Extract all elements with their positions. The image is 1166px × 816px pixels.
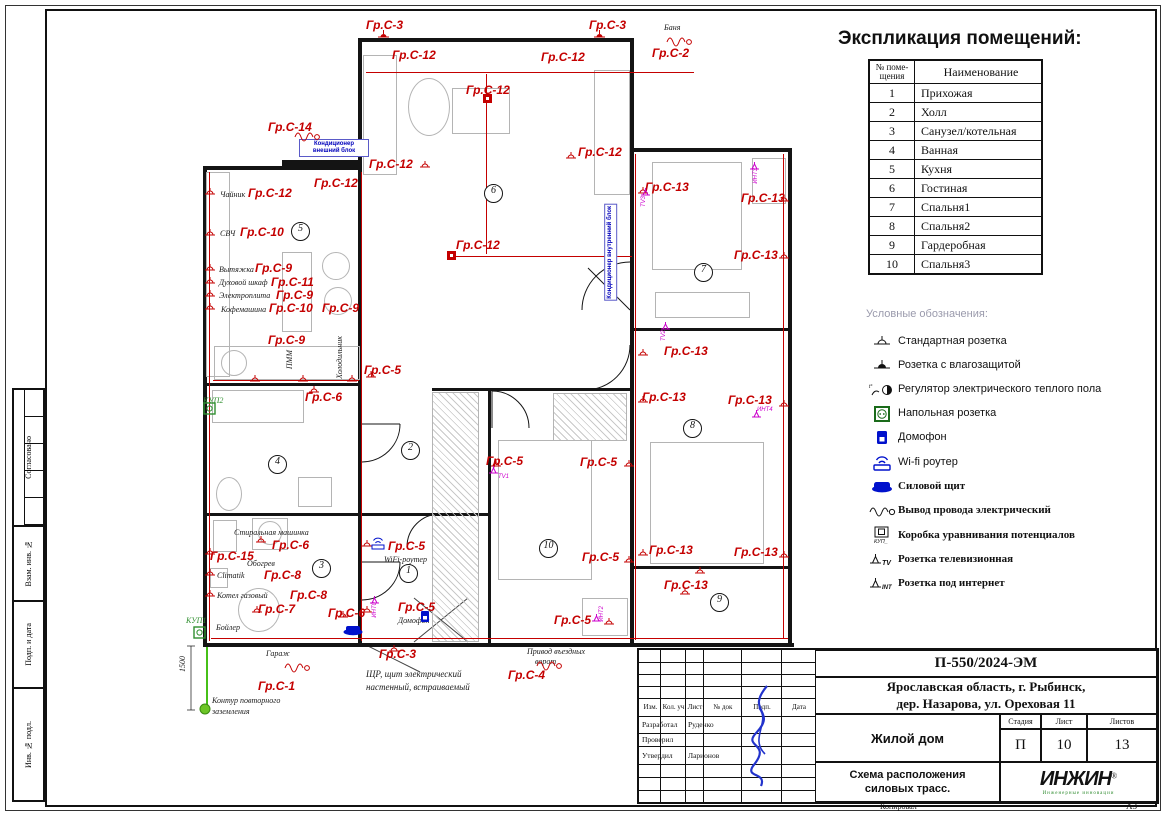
sock-marker-icon	[347, 375, 357, 385]
room-number-cell: 9	[869, 236, 915, 255]
plan-label: Баня	[664, 24, 680, 32]
legend-item: t°Регулятор электрического теплого пола	[866, 381, 1126, 398]
logo-reg-mark: ®	[1111, 772, 1117, 781]
sock-marker-icon	[695, 567, 705, 577]
plan-label: Гр.С-13	[649, 544, 693, 557]
fs-marker-icon	[482, 93, 493, 104]
title-block: П-550/2024-ЭМ Ярославская область, г. Ры…	[637, 648, 1159, 804]
room-number-cell: 5	[869, 160, 915, 179]
sock-marker-icon	[205, 548, 215, 558]
ws-marker-icon	[594, 30, 605, 41]
plan-label: Гр.С-12	[578, 146, 622, 159]
room-number: 4	[268, 455, 287, 474]
legend-item: КУП_Коробка уравнивания потенциалов	[866, 526, 1126, 544]
address-line1: Ярославская область, г. Рыбинск,	[887, 679, 1086, 695]
sock-marker-icon	[298, 375, 308, 385]
sock-marker-icon	[252, 606, 262, 616]
role-approved: Утвердил	[640, 746, 685, 764]
sock-marker-icon	[309, 386, 319, 396]
tvm-marker-icon	[489, 466, 498, 475]
wall	[788, 148, 792, 647]
room-name-cell: Гардеробная	[915, 236, 1043, 255]
plan-label: СВЧ	[220, 230, 235, 238]
table-row: 10Спальня3	[869, 255, 1042, 275]
svg-text:КУП_: КУП_	[874, 539, 888, 544]
furniture	[652, 162, 742, 270]
sock-marker-icon	[338, 611, 348, 621]
room-name-cell: Санузел/котельная	[915, 122, 1043, 141]
legend-item: Розетка с влагозащитой	[866, 357, 1126, 374]
room-name-cell: Кухня	[915, 160, 1043, 179]
room-number-cell: 8	[869, 217, 915, 236]
sock-marker-icon	[779, 551, 789, 561]
plan-label: Гр.С-12	[456, 239, 500, 252]
sock-marker-icon	[638, 349, 648, 359]
floor-socket-icon	[866, 406, 898, 422]
room-name-cell: Спальня1	[915, 198, 1043, 217]
wall	[632, 328, 790, 331]
wiring-line	[211, 638, 788, 639]
table-row: 8Спальня2	[869, 217, 1042, 236]
explication-title: Экспликация помещений:	[838, 28, 1082, 50]
plan-label: Гр.С-12	[541, 51, 585, 64]
plan-label: Гр.С-11	[271, 276, 314, 289]
header-room-number: № поме- щения	[869, 60, 915, 84]
wall	[203, 166, 362, 170]
table-row: 7Спальня1	[869, 198, 1042, 217]
intercom-icon	[866, 430, 898, 445]
int-socket-icon: INT	[866, 577, 898, 591]
side-stamp-label: Согласовано	[24, 436, 33, 479]
wiring-line	[213, 380, 359, 381]
plan-label: Гр.С-13	[645, 181, 689, 194]
socket-moisture-icon	[866, 359, 898, 373]
table-row: 4Ванная	[869, 141, 1042, 160]
plan-label: Чайник	[220, 191, 245, 199]
room-name-cell: Ванная	[915, 141, 1043, 160]
room-number: 1	[399, 564, 418, 583]
plan-label: TV1	[498, 474, 509, 480]
side-stamp-column: СогласованоВзам. инв. №Подп. и датаИнв. …	[12, 388, 45, 802]
plan-label: Кондиционер внутренний блок	[604, 204, 617, 301]
object-address: Ярославская область, г. Рыбинск, дер. На…	[815, 677, 1157, 714]
plan-label: ЩР, щит электрический	[366, 670, 462, 679]
plan-label: Climatik	[217, 572, 245, 580]
shield-marker-icon	[342, 624, 364, 636]
sock-marker-icon	[389, 645, 399, 655]
doc-number: П-550/2024-ЭМ	[815, 650, 1157, 677]
wiring-line	[783, 154, 784, 638]
room-number: 6	[484, 184, 503, 203]
plan-label: КУП1	[186, 617, 206, 625]
ww-marker-icon	[284, 660, 310, 673]
furniture	[655, 292, 750, 318]
wire-outlet-icon	[866, 504, 898, 518]
furniture	[216, 477, 242, 511]
plan-label: Гр.С-12	[392, 49, 436, 62]
legend-item-label: Коробка уравнивания потенциалов	[898, 529, 1075, 542]
side-stamp-section: Подп. и дата	[14, 602, 43, 689]
tvm-marker-icon	[592, 614, 601, 623]
table-row: 9Гардеробная	[869, 236, 1042, 255]
sock-marker-icon	[624, 556, 634, 566]
sock-marker-icon	[250, 375, 260, 385]
sock-marker-icon	[205, 229, 215, 239]
plan-label: Гр.С-9	[255, 262, 292, 275]
sheets-label: Листов	[1087, 714, 1157, 729]
room-number-cell: 4	[869, 141, 915, 160]
legend-item-label: Вывод провода электрический	[898, 504, 1051, 517]
ground-wire-line	[206, 647, 208, 707]
wifi-marker-icon	[370, 536, 386, 550]
side-stamp-label: Подп. и дата	[24, 623, 33, 666]
room-number: 9	[710, 593, 729, 612]
furniture	[408, 78, 450, 136]
table-row: 3Санузел/котельная	[869, 122, 1042, 141]
wall	[488, 388, 491, 647]
legend-item: TVРозетка телевизионная	[866, 551, 1126, 568]
plan-label: Гр.С-5	[554, 614, 591, 627]
wall	[203, 383, 362, 386]
legend-item-label: Регулятор электрического теплого пола	[898, 383, 1101, 396]
sock-marker-icon	[205, 590, 215, 600]
furniture	[432, 392, 479, 642]
wall	[282, 160, 362, 166]
svg-text:TV: TV	[882, 560, 892, 567]
legend-item-label: Силовой щит	[898, 480, 965, 493]
plan-label: Гр.С-9	[276, 289, 313, 302]
legend-item: Домофон	[866, 429, 1126, 446]
plan-label: TV2	[661, 330, 667, 341]
legend-item-label: Розетка с влагозащитой	[898, 359, 1021, 372]
ww-marker-icon	[294, 129, 320, 142]
sock-marker-icon	[604, 618, 614, 628]
plan-label: настенный, встраиваемый	[366, 683, 470, 692]
room-number: 8	[683, 419, 702, 438]
format-label: А3	[1126, 801, 1137, 811]
svg-text:t°: t°	[869, 384, 872, 390]
sock-marker-icon	[362, 606, 372, 616]
sock-marker-icon	[638, 396, 648, 406]
plan-label: TV3	[641, 196, 647, 207]
header-room-name: Наименование	[915, 60, 1043, 84]
tvm-marker-icon	[370, 596, 379, 605]
side-stamp-section: Инв. № подл.	[14, 689, 43, 800]
col-data: Дата	[781, 698, 815, 716]
legend: Условные обозначения: Стандартная розетк…	[866, 308, 1126, 599]
room-number-cell: 7	[869, 198, 915, 217]
role-developed: Разработал	[640, 716, 685, 733]
legend-item-label: Розетка телевизионная	[898, 553, 1013, 566]
wifi-router-icon	[866, 453, 898, 471]
furniture	[594, 70, 630, 195]
plan-label: Духовой шкаф	[219, 279, 268, 287]
stage-label: Стадия	[1000, 714, 1041, 729]
name-developed: Руденко	[686, 716, 740, 733]
power-shield-icon	[866, 480, 898, 493]
company-logo: ИНЖИН® Инженерные инновации	[1000, 762, 1157, 802]
legend-item-label: Wi-fi роутер	[898, 456, 958, 469]
ww-marker-icon	[536, 658, 562, 671]
legend-item: Силовой щит	[866, 478, 1126, 495]
legend-item: Вывод провода электрический	[866, 502, 1126, 519]
furniture	[553, 393, 627, 441]
plan-label: Гр.С-5	[580, 456, 617, 469]
plan-label: Гр.С-7	[258, 603, 295, 616]
plan-label: Контур повторного	[212, 697, 280, 705]
socket-standard-icon	[866, 335, 898, 349]
legend-item-label: Розетка под интернет	[898, 577, 1005, 590]
side-stamp-label: Взам. инв. №	[24, 540, 33, 586]
room-number: 3	[312, 559, 331, 578]
plan-label: Гр.С-1	[258, 680, 295, 693]
legend-item-label: Домофон	[898, 431, 947, 444]
tvm-marker-icon	[661, 322, 670, 331]
plan-label: Гр.С-9	[268, 334, 305, 347]
col-izm: Изм.	[639, 698, 660, 716]
legend-item-label: Напольная розетка	[898, 407, 996, 420]
wall	[203, 643, 794, 647]
plan-label: Гр.С-8	[290, 589, 327, 602]
ws-marker-icon	[378, 30, 389, 41]
plan-label: Гр.С-10	[269, 302, 313, 315]
plan-label: Стиральная машинка	[234, 529, 309, 537]
sheet-title: Схема расположения силовых трасс.	[815, 762, 1000, 802]
side-stamp-label: Инв. № подл.	[24, 721, 33, 768]
room-number-cell: 10	[869, 255, 915, 275]
plan-label: Гр.С-8	[264, 569, 301, 582]
room-name-cell: Прихожая	[915, 84, 1043, 103]
plan-label: Гр.С-2	[652, 47, 689, 60]
plan-label: Бойлер	[216, 624, 240, 632]
sock-marker-icon	[366, 371, 376, 381]
room-name-cell: Спальня3	[915, 255, 1043, 275]
plan-label: Гр.С-13	[734, 249, 778, 262]
side-stamp-section: Согласовано	[14, 390, 43, 527]
sock-marker-icon	[638, 549, 648, 559]
legend-item: Напольная розетка	[866, 405, 1126, 422]
sheet-title-line1: Схема расположения	[850, 768, 966, 782]
furniture	[221, 350, 247, 376]
logo-subtitle: Инженерные инновации	[1043, 791, 1115, 796]
room-name-cell: Гостиная	[915, 179, 1043, 198]
plan-label: Гр.С-5	[582, 551, 619, 564]
sock-marker-icon	[624, 460, 634, 470]
wiring-line	[486, 102, 487, 254]
table-header-row: № поме- щенияНаименование	[869, 60, 1042, 84]
sock-marker-icon	[680, 588, 690, 598]
table-row: 2Холл	[869, 103, 1042, 122]
room-number-cell: 2	[869, 103, 915, 122]
wiring-line	[361, 172, 362, 641]
plan-label: Гр.С-10	[240, 226, 284, 239]
wiring-line	[366, 72, 694, 73]
table-row: 6Гостиная	[869, 179, 1042, 198]
sock-marker-icon	[779, 400, 789, 410]
kup-marker-icon	[193, 626, 206, 639]
sheets-value: 13	[1087, 729, 1157, 762]
wall	[632, 566, 790, 569]
gnd-marker-icon	[199, 703, 211, 715]
col-list: Лист	[685, 698, 703, 716]
plan-label: Гр.С-5	[388, 540, 425, 553]
plan-label: Гр.С-13	[734, 546, 778, 559]
tvm-marker-icon	[750, 162, 759, 171]
sock-marker-icon	[566, 152, 576, 162]
col-kol-uch: Кол. уч	[660, 698, 685, 716]
dom-marker-icon	[420, 610, 430, 623]
legend-title: Условные обозначения:	[866, 308, 1126, 320]
object-name: Жилой дом	[815, 714, 1000, 762]
stage-value: П	[1000, 729, 1041, 762]
plan-label: заземления	[212, 708, 250, 716]
plan-label: Кофемашина	[221, 306, 266, 314]
plan-label: ПММ	[286, 350, 294, 369]
sock-marker-icon	[779, 252, 789, 262]
room-name-cell: Холл	[915, 103, 1043, 122]
drawing-sheet: СогласованоВзам. инв. №Подп. и датаИнв. …	[0, 0, 1166, 816]
plan-label: Гр.С-13	[642, 391, 686, 404]
room-number-cell: 6	[869, 179, 915, 198]
plan-label: Гр.С-12	[369, 158, 413, 171]
room-number-cell: 3	[869, 122, 915, 141]
sock-marker-icon	[205, 290, 215, 300]
sock-marker-icon	[205, 277, 215, 287]
plan-label: Гр.С-13	[664, 345, 708, 358]
plan-label: 1500	[179, 656, 187, 672]
sock-marker-icon	[205, 303, 215, 313]
sock-marker-icon	[205, 569, 215, 579]
logo-text: ИНЖИН	[1040, 768, 1111, 790]
tvm-marker-icon	[752, 410, 761, 419]
side-stamp-section: Взам. инв. №	[14, 527, 43, 602]
legend-item: Стандартная розетка	[866, 333, 1126, 350]
room-number-cell: 1	[869, 84, 915, 103]
role-checked: Проверил	[640, 733, 685, 746]
tvm-marker-icon	[641, 188, 650, 197]
plan-label: Вытяжка	[219, 266, 254, 274]
tv-socket-icon: TV	[866, 553, 898, 567]
wall	[358, 38, 634, 42]
plan-label: Гараж	[266, 650, 290, 658]
plan-label: Гр.С-6	[272, 539, 309, 552]
plan-label: Гр.С-13	[728, 394, 772, 407]
wall	[630, 148, 792, 152]
kup-box-icon: КУП_	[866, 526, 898, 544]
copied-label: Копировал	[880, 802, 917, 811]
sheet-value: 10	[1041, 729, 1087, 762]
sheet-title-line2: силовых трасс.	[865, 782, 950, 796]
wall	[630, 38, 634, 154]
plan-label: Электроплита	[219, 292, 270, 300]
wall	[432, 388, 633, 391]
plan-label: Холодильник	[336, 336, 344, 379]
room-number: 5	[291, 222, 310, 241]
col-doc: № док	[703, 698, 741, 716]
kup-marker-icon	[203, 402, 216, 415]
wall	[630, 150, 634, 647]
furniture	[298, 477, 332, 507]
room-name-cell: Спальня2	[915, 217, 1043, 236]
room-number: 2	[401, 441, 420, 460]
plan-label: Котел газовый	[217, 592, 268, 600]
room-number: 10	[539, 539, 558, 558]
legend-item-label: Стандартная розетка	[898, 335, 1007, 348]
sock-marker-icon	[420, 161, 430, 171]
ww-marker-icon	[666, 34, 692, 47]
svg-text:INT: INT	[882, 585, 893, 591]
explication-table: № поме- щенияНаименование1Прихожая2Холл3…	[868, 59, 1043, 275]
plan-label: Гр.С-12	[248, 187, 292, 200]
wiring-line	[635, 154, 636, 640]
table-row: 1Прихожая	[869, 84, 1042, 103]
name-approved: Ларионов	[686, 746, 740, 764]
sheet-label: Лист	[1041, 714, 1087, 729]
plan-label: Привод въездных	[527, 648, 585, 656]
plan-label: WiFi-роутер	[384, 556, 427, 564]
plan-label: Гр.С-9	[322, 302, 359, 315]
sock-marker-icon	[256, 536, 266, 546]
heating-regulator-icon: t°	[866, 382, 898, 398]
sock-marker-icon	[779, 195, 789, 205]
fs-marker-icon	[446, 250, 457, 261]
sock-marker-icon	[205, 264, 215, 274]
legend-item: Wi-fi роутер	[866, 453, 1126, 471]
address-line2: дер. Назарова, ул. Ореховая 11	[897, 696, 1076, 712]
room-explication: Экспликация помещений: № поме- щенияНаим…	[838, 28, 1082, 275]
furniture	[212, 390, 304, 423]
signature	[737, 678, 785, 798]
sock-marker-icon	[205, 188, 215, 198]
furniture	[322, 252, 350, 280]
table-row: 5Кухня	[869, 160, 1042, 179]
room-number: 7	[694, 263, 713, 282]
wall	[203, 513, 362, 516]
plan-label: Гр.С-12	[314, 177, 358, 190]
legend-item: INTРозетка под интернет	[866, 575, 1126, 592]
